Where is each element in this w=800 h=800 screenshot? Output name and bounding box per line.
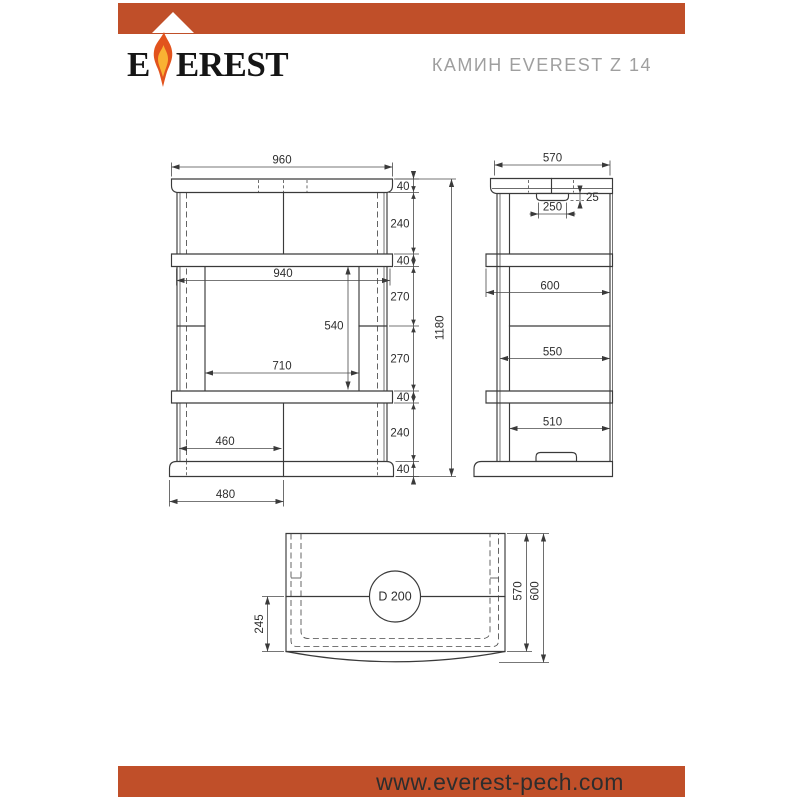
dim-side-vent-height: 25 <box>586 192 599 204</box>
dim-front-h7: 240 <box>390 427 409 439</box>
dim-front-base-half-width: 480 <box>216 489 235 501</box>
dim-front-width-total: 960 <box>272 155 291 167</box>
front-dimensions: 960 40 240 40 270 270 40 240 40 1180 <box>170 155 457 507</box>
dim-top-flue-diameter: D 200 <box>378 590 411 604</box>
front-view: 960 40 240 40 270 270 40 240 40 1180 <box>170 155 457 507</box>
dim-front-shelf-inner-width: 940 <box>273 268 292 280</box>
dim-front-h4: 270 <box>390 291 409 303</box>
dim-side-vent-width: 250 <box>543 202 562 214</box>
side-view: 570 25 250 600 550 510 <box>474 153 613 477</box>
dim-side-shelf-depth: 600 <box>540 281 559 293</box>
dim-front-h1: 40 <box>397 181 410 193</box>
dim-top-body-depth: 570 <box>513 581 525 600</box>
dim-front-opening-width: 710 <box>272 361 291 373</box>
dim-front-h3: 40 <box>397 255 410 267</box>
side-geometry <box>474 179 613 477</box>
dim-front-height-total: 1180 <box>435 315 447 340</box>
dim-side-depth-total: 570 <box>543 153 562 165</box>
front-geometry <box>170 179 394 477</box>
dim-front-h2: 240 <box>390 218 409 230</box>
dim-top-overall-depth: 600 <box>530 581 542 600</box>
dim-front-firebox-height: 540 <box>324 321 343 333</box>
dim-side-base-inner-depth: 510 <box>543 417 562 429</box>
dim-front-h6: 40 <box>397 392 410 404</box>
top-view: D 200 245 570 600 <box>254 534 549 663</box>
technical-drawing: 960 40 240 40 270 270 40 240 40 1180 <box>0 0 800 800</box>
dim-front-inner-half-width: 460 <box>215 436 234 448</box>
dim-side-body-depth: 550 <box>543 347 562 359</box>
dim-front-h8: 40 <box>397 464 410 476</box>
poster-page: E EREST КАМИН EVEREST Z 14 <box>0 0 800 800</box>
website-text: www.everest-pech.com <box>320 769 680 796</box>
top-geometry: D 200 <box>286 534 505 662</box>
dim-top-flue-offset: 245 <box>254 614 266 633</box>
dim-front-h5: 270 <box>390 354 409 366</box>
